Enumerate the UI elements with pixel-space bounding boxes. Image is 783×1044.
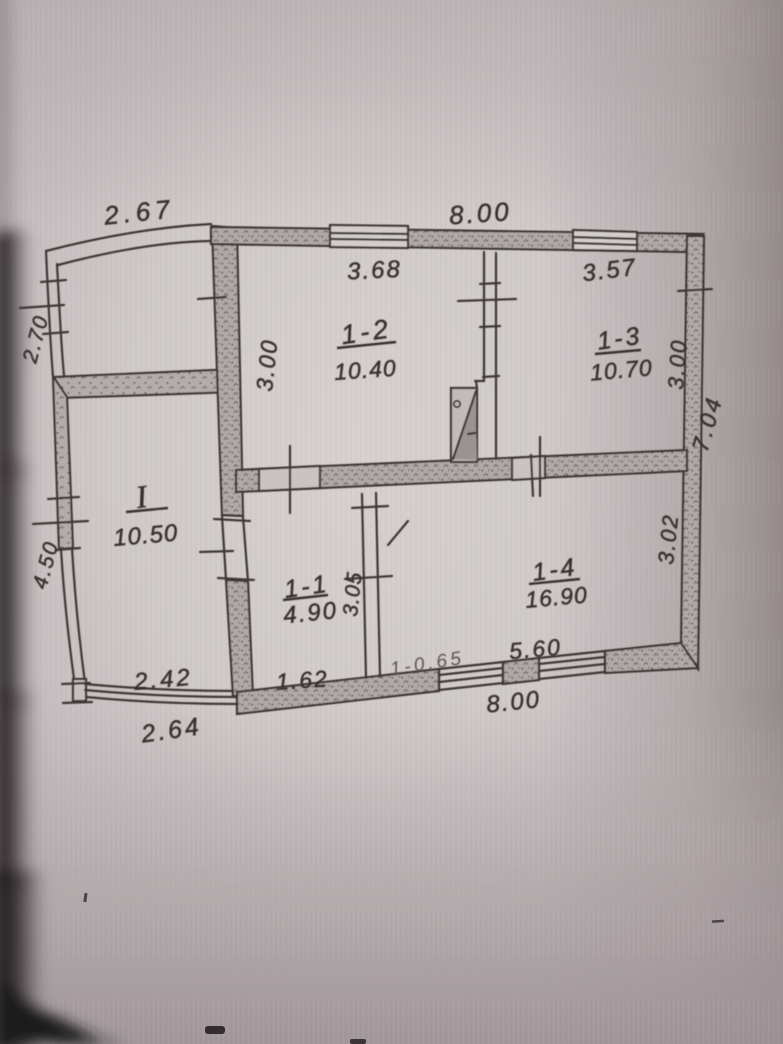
svg-text:10.70: 10.70 xyxy=(589,354,654,385)
svg-text:8.00: 8.00 xyxy=(485,686,542,719)
svg-text:4.90: 4.90 xyxy=(282,597,339,630)
svg-text:3.05: 3.05 xyxy=(339,570,367,617)
svg-text:10.50: 10.50 xyxy=(112,519,179,552)
svg-text:3.00: 3.00 xyxy=(663,338,691,390)
svg-text:3.02: 3.02 xyxy=(653,512,683,565)
svg-text:3.68: 3.68 xyxy=(346,256,402,286)
svg-text:1.62: 1.62 xyxy=(275,665,329,695)
svg-text:2.42: 2.42 xyxy=(132,664,194,696)
svg-text:3.00: 3.00 xyxy=(251,337,282,392)
svg-text:10.40: 10.40 xyxy=(333,355,397,385)
svg-text:16.90: 16.90 xyxy=(524,581,589,612)
svg-text:8.00: 8.00 xyxy=(448,196,513,230)
svg-text:5.60: 5.60 xyxy=(508,634,563,664)
